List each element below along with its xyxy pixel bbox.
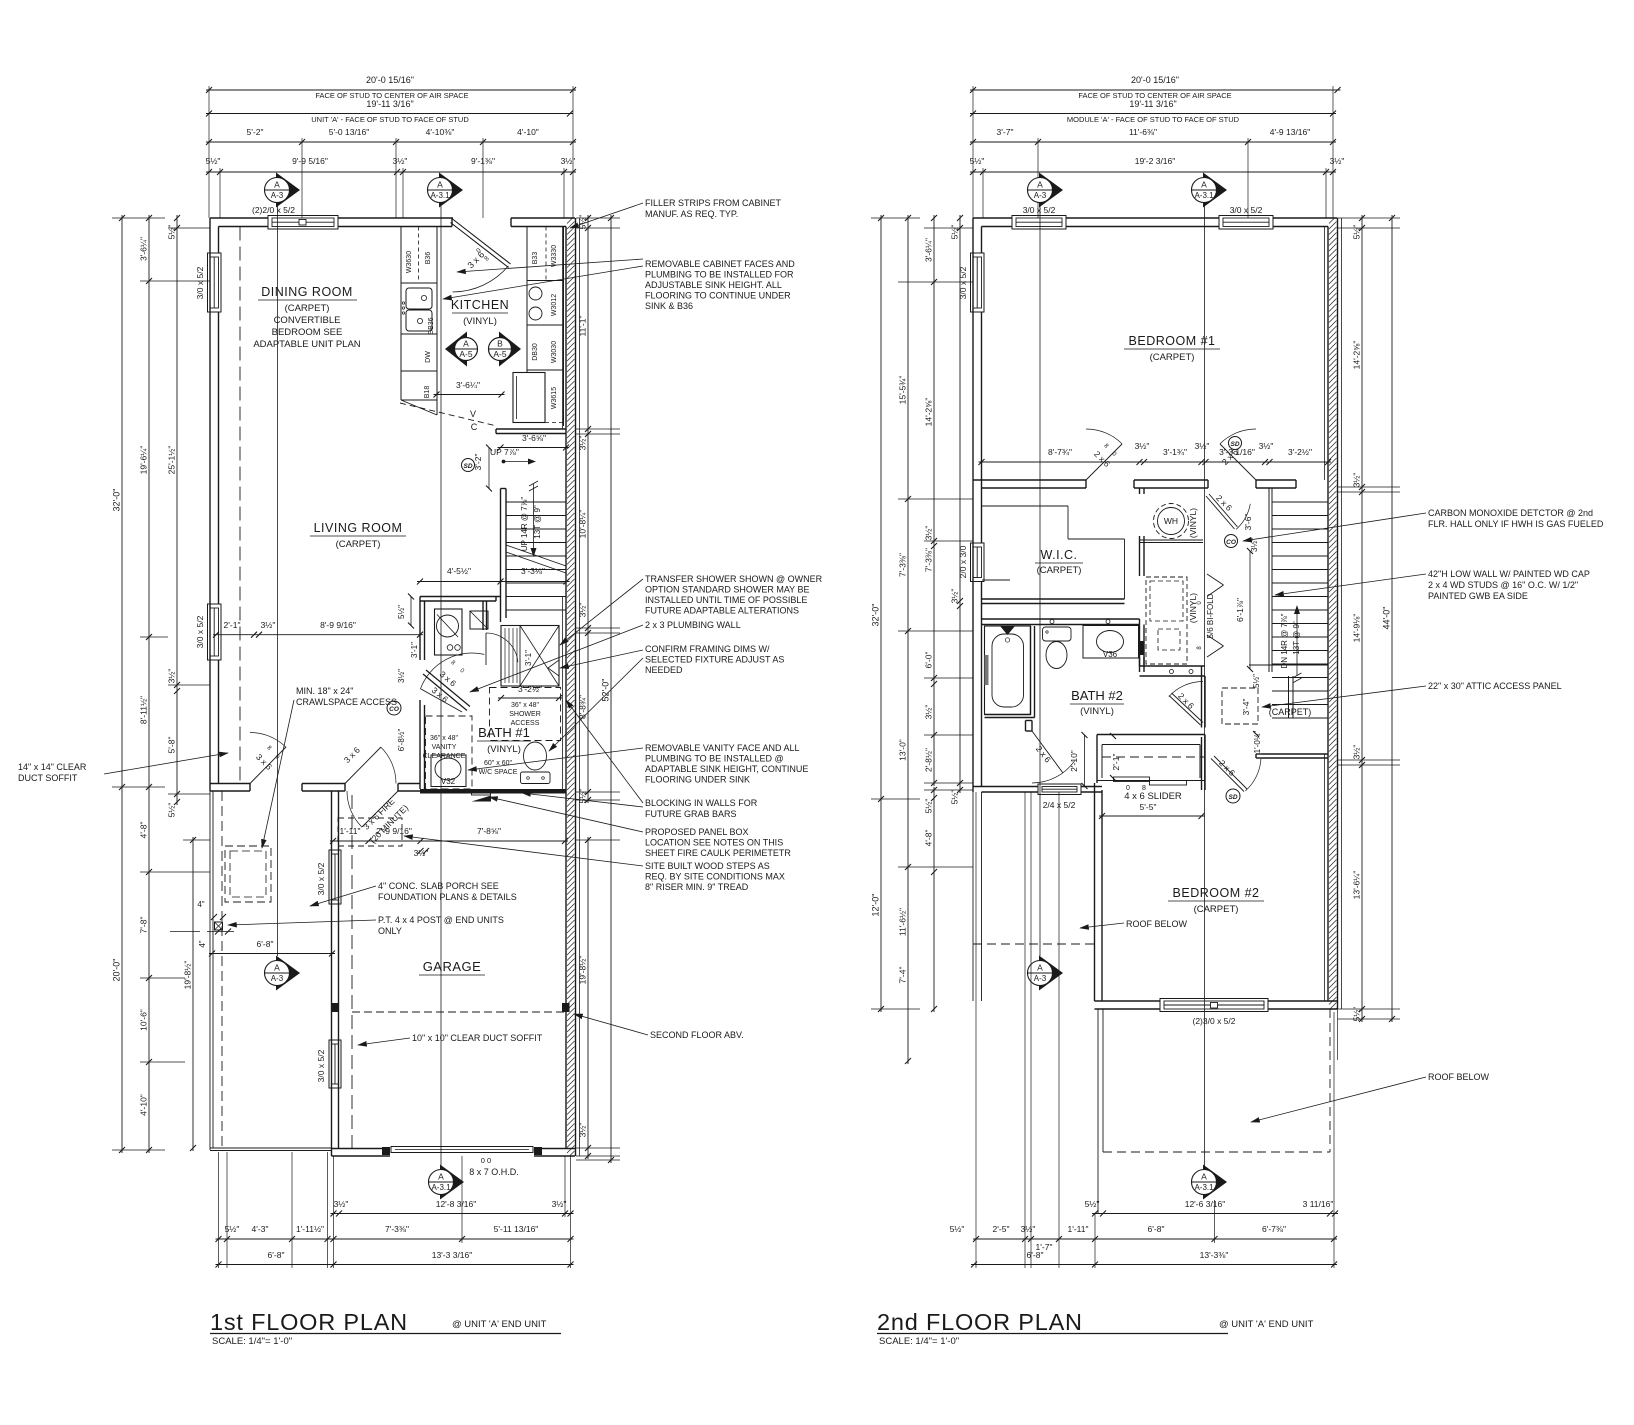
svg-text:4'-10": 4'-10" [139, 1094, 149, 1116]
svg-text:8'-9 9/16": 8'-9 9/16" [320, 620, 356, 630]
svg-text:W3330: W3330 [551, 245, 558, 267]
svg-text:22" x 30" ATTIC ACCESS PANEL: 22" x 30" ATTIC ACCESS PANEL [1428, 681, 1562, 691]
svg-text:A-3.1: A-3.1 [1194, 191, 1214, 200]
svg-text:2nd FLOOR PLAN: 2nd FLOOR PLAN [877, 1309, 1083, 1335]
svg-text:3½": 3½" [261, 620, 276, 630]
svg-text:5½": 5½" [167, 225, 177, 240]
svg-text:REMOVABLE CABINET FACES AND: REMOVABLE CABINET FACES AND [645, 259, 795, 269]
svg-text:2 x 3 PLUMBING WALL: 2 x 3 PLUMBING WALL [645, 620, 741, 630]
svg-text:1st FLOOR PLAN: 1st FLOOR PLAN [210, 1309, 408, 1335]
svg-text:3½": 3½" [1135, 441, 1150, 451]
svg-text:W/C SPACE: W/C SPACE [479, 769, 518, 776]
svg-text:20'-0": 20'-0" [112, 959, 122, 982]
svg-text:B18: B18 [424, 386, 431, 399]
svg-text:(VINYL): (VINYL) [1080, 706, 1114, 717]
svg-text:3'-3⅛": 3'-3⅛" [521, 566, 545, 576]
svg-text:4 x 6 SLIDER: 4 x 6 SLIDER [1124, 791, 1182, 802]
svg-text:5½": 5½" [924, 799, 934, 814]
svg-text:A: A [1201, 1172, 1207, 1182]
svg-text:6'-1⅞": 6'-1⅞" [1235, 598, 1245, 622]
svg-text:5½": 5½" [970, 156, 985, 166]
svg-text:MIN. 18" x 24": MIN. 18" x 24" [296, 686, 353, 696]
svg-text:GARAGE: GARAGE [423, 959, 482, 974]
svg-text:PAINTED GWB EA SIDE: PAINTED GWB EA SIDE [1428, 591, 1528, 601]
svg-text:A: A [437, 180, 443, 190]
svg-text:FUTURE GRAB BARS: FUTURE GRAB BARS [645, 809, 737, 819]
svg-text:13T @ 9": 13T @ 9" [1292, 621, 1301, 655]
svg-text:(CARPET): (CARPET) [1269, 707, 1312, 717]
svg-text:1'-11": 1'-11" [339, 826, 360, 836]
svg-text:3'-2½": 3'-2½" [518, 684, 542, 694]
svg-text:BATH #2: BATH #2 [1071, 688, 1123, 703]
svg-text:A: A [1201, 180, 1207, 190]
svg-text:0 0: 0 0 [481, 1156, 491, 1165]
svg-text:3½": 3½" [167, 669, 177, 684]
svg-text:ADAPTABLE UNIT PLAN: ADAPTABLE UNIT PLAN [253, 339, 360, 350]
svg-text:5'-2": 5'-2" [247, 127, 264, 137]
svg-text:(2)3/0 x 5/2: (2)3/0 x 5/2 [1193, 1016, 1236, 1026]
svg-text:SINK & B36: SINK & B36 [645, 301, 693, 311]
svg-text:SD: SD [1228, 794, 1237, 801]
svg-text:25'-1½": 25'-1½" [167, 446, 177, 475]
svg-text:VANITY: VANITY [432, 744, 457, 751]
svg-text:SELECTED FIXTURE ADJUST AS: SELECTED FIXTURE ADJUST AS [645, 655, 784, 665]
svg-text:19'-11 3/16": 19'-11 3/16" [1129, 99, 1176, 109]
svg-text:CO: CO [1226, 539, 1236, 546]
svg-text:14'-2⅝": 14'-2⅝" [924, 398, 934, 427]
svg-text:3'-1": 3'-1" [524, 650, 533, 666]
svg-text:CRAWLSPACE ACCESS: CRAWLSPACE ACCESS [296, 697, 397, 707]
svg-text:11'-6⅜": 11'-6⅜" [1129, 127, 1157, 137]
svg-text:BATH #1: BATH #1 [478, 725, 530, 740]
svg-text:4'-8": 4'-8" [139, 822, 149, 839]
svg-text:FILLER STRIPS FROM CABINET: FILLER STRIPS FROM CABINET [645, 198, 782, 208]
svg-text:PROPOSED PANEL BOX: PROPOSED PANEL BOX [645, 827, 749, 837]
svg-text:10" x 10" CLEAR DUCT SOFFIT: 10" x 10" CLEAR DUCT SOFFIT [412, 1033, 543, 1043]
svg-text:INSTALLED UNTIL TIME OF POSSIB: INSTALLED UNTIL TIME OF POSSIBLE [645, 595, 807, 605]
svg-text:14'-9⅛": 14'-9⅛" [1352, 614, 1362, 643]
svg-text:A-3: A-3 [271, 974, 284, 983]
svg-text:@ UNIT 'A' END UNIT: @ UNIT 'A' END UNIT [1219, 1319, 1314, 1330]
svg-text:3½": 3½" [1195, 441, 1210, 451]
svg-text:3/0 x 5/2: 3/0 x 5/2 [958, 266, 968, 299]
svg-text:4": 4" [197, 900, 204, 909]
svg-text:3/0 x 5/2: 3/0 x 5/2 [195, 266, 205, 299]
svg-text:5½": 5½" [950, 790, 960, 805]
svg-text:12'-8 3/16": 12'-8 3/16" [436, 1199, 477, 1209]
svg-text:14'-2⅝": 14'-2⅝" [1352, 341, 1362, 370]
svg-text:FLOORING TO CONTINUE UNDER: FLOORING TO CONTINUE UNDER [645, 291, 791, 301]
svg-text:SB36: SB36 [428, 317, 435, 334]
svg-text:9'-9 5/16": 9'-9 5/16" [292, 156, 328, 166]
svg-text:ROOF BELOW: ROOF BELOW [1126, 919, 1188, 929]
svg-text:DW: DW [425, 351, 432, 363]
svg-text:DINING ROOM: DINING ROOM [261, 285, 353, 299]
svg-text:6'-7⅜": 6'-7⅜" [1262, 1224, 1286, 1234]
svg-text:(CARPET): (CARPET) [1150, 352, 1195, 363]
svg-text:42"H LOW WALL W/ PAINTED WD CA: 42"H LOW WALL W/ PAINTED WD CAP [1428, 569, 1590, 579]
svg-text:2'-5": 2'-5" [993, 1224, 1010, 1234]
svg-text:SCALE: 1/4"= 1'-0": SCALE: 1/4"= 1'-0" [879, 1336, 959, 1347]
svg-text:PLUMBING TO BE INSTALLED FOR: PLUMBING TO BE INSTALLED FOR [645, 270, 794, 280]
svg-text:5'-11 13/16": 5'-11 13/16" [494, 1224, 539, 1234]
svg-text:3½": 3½" [1352, 745, 1362, 760]
svg-text:CARBON MONOXIDE DETCTOR @ 2nd: CARBON MONOXIDE DETCTOR @ 2nd [1428, 508, 1593, 518]
svg-text:KITCHEN: KITCHEN [451, 298, 509, 312]
svg-text:V32: V32 [441, 777, 456, 786]
svg-text:3/0 x 5/2: 3/0 x 5/2 [1230, 205, 1263, 215]
svg-text:P.T. 4 x 4 POST @ END UNITS: P.T. 4 x 4 POST @ END UNITS [378, 915, 504, 925]
svg-text:3'-1": 3'-1" [410, 642, 419, 658]
svg-text:FLOORING UNDER SINK: FLOORING UNDER SINK [645, 775, 750, 785]
svg-text:A-3.1: A-3.1 [430, 191, 450, 200]
svg-text:5½": 5½" [397, 605, 406, 619]
svg-text:C: C [471, 422, 478, 432]
svg-text:7'-3⅜": 7'-3⅜" [385, 1224, 409, 1234]
svg-text:(VINYL): (VINYL) [463, 316, 497, 327]
svg-text:4": 4" [198, 940, 207, 947]
svg-text:CONVERTIBLE: CONVERTIBLE [274, 315, 341, 326]
svg-text:2/0 x 3/0: 2/0 x 3/0 [958, 545, 968, 578]
svg-text:SITE BUILT WOOD STEPS AS: SITE BUILT WOOD STEPS AS [645, 861, 770, 871]
svg-text:FUTURE ADAPTABLE ALTERATIONS: FUTURE ADAPTABLE ALTERATIONS [645, 606, 799, 616]
svg-text:6'-0": 6'-0" [924, 652, 934, 669]
svg-text:4'-8": 4'-8" [924, 830, 934, 847]
svg-text:12'-6 3/16": 12'-6 3/16" [1185, 1199, 1226, 1209]
svg-text:ROOF BELOW: ROOF BELOW [1428, 1072, 1490, 1082]
svg-text:7'-3⅜": 7'-3⅜" [898, 553, 908, 577]
svg-text:3½": 3½" [578, 1123, 588, 1138]
svg-text:A-3.1: A-3.1 [431, 1183, 451, 1192]
svg-text:B36: B36 [425, 252, 432, 265]
svg-text:13T @ 9": 13T @ 9" [533, 505, 542, 539]
svg-text:BEDROOM #2: BEDROOM #2 [1173, 886, 1260, 900]
svg-text:(CARPET): (CARPET) [1194, 904, 1239, 915]
svg-text:5½": 5½" [167, 803, 177, 818]
svg-text:SD: SD [463, 463, 472, 470]
svg-text:(VINYL): (VINYL) [1188, 593, 1198, 623]
svg-text:BEDROOM #1: BEDROOM #1 [1129, 334, 1216, 348]
svg-text:3'-4": 3'-4" [1241, 699, 1251, 716]
svg-text:20'-0 15/16": 20'-0 15/16" [366, 75, 414, 85]
svg-text:SD: SD [1230, 441, 1239, 448]
svg-text:1'-11½": 1'-11½" [296, 1224, 324, 1234]
svg-text:DN 14R @ 7⅞": DN 14R @ 7⅞" [1280, 613, 1289, 668]
svg-text:5½": 5½" [950, 225, 960, 240]
svg-text:A-5: A-5 [459, 349, 473, 359]
svg-text:W3615: W3615 [551, 387, 558, 409]
svg-text:W3012: W3012 [551, 294, 558, 316]
svg-text:CONFIRM FRAMING DIMS W/: CONFIRM FRAMING DIMS W/ [645, 644, 770, 654]
svg-text:13'-6¼": 13'-6¼" [1352, 871, 1362, 900]
svg-text:32'-0": 32'-0" [871, 604, 881, 627]
svg-text:44'-0": 44'-0" [1382, 607, 1392, 630]
svg-text:2 x 4 WD STUDS @ 16" O.C. W/ 1: 2 x 4 WD STUDS @ 16" O.C. W/ 1/2" [1428, 580, 1578, 590]
svg-text:36" x 48": 36" x 48" [430, 735, 458, 742]
svg-text:A: A [463, 339, 469, 349]
svg-text:20'-0 15/16": 20'-0 15/16" [1131, 75, 1179, 85]
svg-text:13'-3 3/16": 13'-3 3/16" [432, 1250, 473, 1260]
svg-text:3'-7": 3'-7" [997, 127, 1014, 137]
svg-text:(VINYL): (VINYL) [487, 744, 521, 755]
svg-text:A: A [274, 180, 280, 190]
svg-text:7'-8": 7'-8" [139, 917, 149, 934]
svg-text:13'-0": 13'-0" [898, 739, 908, 761]
svg-text:5½": 5½" [578, 789, 588, 804]
svg-text:A-3: A-3 [1034, 974, 1047, 983]
svg-text:4'-10⅜": 4'-10⅜" [426, 127, 455, 137]
svg-text:3½": 3½" [414, 848, 429, 858]
svg-text:W3630: W3630 [406, 251, 413, 273]
svg-text:LOCATION SEE NOTES ON THIS: LOCATION SEE NOTES ON THIS [645, 838, 783, 848]
svg-text:(CARPET): (CARPET) [336, 539, 381, 550]
svg-text:3'-6¼": 3'-6¼" [456, 380, 480, 390]
svg-text:FLR. HALL ONLY IF HWH IS GAS F: FLR. HALL ONLY IF HWH IS GAS FUELED [1428, 519, 1604, 529]
svg-text:TRANSFER SHOWER SHOWN @ OWNER: TRANSFER SHOWER SHOWN @ OWNER [645, 574, 823, 584]
svg-text:8'-8¾": 8'-8¾" [578, 695, 588, 719]
svg-text:7'-8⅝": 7'-8⅝" [477, 826, 501, 836]
svg-text:5/6 BI-FOLD: 5/6 BI-FOLD [1206, 593, 1215, 638]
svg-text:5½": 5½" [950, 1224, 965, 1234]
svg-text:3'-2½": 3'-2½" [1288, 447, 1312, 457]
svg-text:3½": 3½" [552, 1199, 567, 1209]
svg-text:3½": 3½" [1352, 473, 1362, 488]
svg-text:12'-0": 12'-0" [871, 894, 881, 917]
svg-text:14" x 14" CLEAR: 14" x 14" CLEAR [18, 762, 87, 772]
svg-text:A: A [274, 963, 280, 973]
svg-text:19'-8½": 19'-8½" [578, 956, 588, 985]
svg-text:19'-2 3/16": 19'-2 3/16" [1135, 156, 1176, 166]
svg-text:LIVING ROOM: LIVING ROOM [314, 521, 403, 535]
svg-text:(CARPET): (CARPET) [285, 303, 330, 314]
svg-text:FOUNDATION PLANS & DETAILS: FOUNDATION PLANS & DETAILS [378, 892, 517, 902]
svg-text:A-3.1: A-3.1 [1194, 1183, 1214, 1192]
svg-text:5½": 5½" [206, 156, 221, 166]
svg-text:5'-8": 5'-8" [167, 737, 177, 754]
svg-text:ONLY: ONLY [378, 926, 402, 936]
svg-text:ADAPTABLE SINK HEIGHT, CONTINU: ADAPTABLE SINK HEIGHT, CONTINUE [645, 764, 808, 774]
svg-text:(CARPET): (CARPET) [1037, 565, 1082, 576]
svg-text:5'-0 13/16": 5'-0 13/16" [329, 127, 370, 137]
svg-text:V: V [470, 409, 476, 419]
svg-text:REMOVABLE VANITY FACE AND ALL: REMOVABLE VANITY FACE AND ALL [645, 743, 800, 753]
svg-text:3½": 3½" [393, 156, 408, 166]
svg-text:NEEDED: NEEDED [645, 665, 683, 675]
svg-text:15'-5¾": 15'-5¾" [898, 376, 908, 405]
svg-text:11'-6½": 11'-6½" [898, 908, 908, 936]
svg-text:A-3: A-3 [1034, 191, 1047, 200]
svg-text:10'-6": 10'-6" [139, 1009, 149, 1031]
svg-text:BEDROOM SEE: BEDROOM SEE [272, 327, 343, 338]
svg-text:1'-11": 1'-11" [1067, 1224, 1088, 1234]
svg-text:3/0 x 5/2: 3/0 x 5/2 [316, 862, 326, 895]
svg-text:3'-2": 3'-2" [473, 454, 483, 471]
svg-text:3½": 3½" [578, 436, 588, 451]
svg-text:5½": 5½" [578, 215, 588, 230]
svg-text:A-3: A-3 [271, 191, 284, 200]
svg-text:4'-10": 4'-10" [517, 127, 539, 137]
svg-text:8'-11½": 8'-11½" [139, 696, 149, 724]
svg-text:SCALE: 1/4"= 1'-0": SCALE: 1/4"= 1'-0" [212, 1336, 292, 1347]
svg-text:32'-0": 32'-0" [112, 489, 122, 512]
svg-text:3½": 3½" [334, 1199, 349, 1209]
svg-text:SECOND FLOOR ABV.: SECOND FLOOR ABV. [650, 1030, 744, 1040]
svg-text:DUCT SOFFIT: DUCT SOFFIT [18, 773, 78, 783]
svg-text:3½": 3½" [1259, 441, 1274, 451]
svg-text:3'-6⅝": 3'-6⅝" [522, 433, 546, 443]
svg-text:A: A [1037, 963, 1043, 973]
svg-text:MODULE 'A' - FACE OF STUD TO F: MODULE 'A' - FACE OF STUD TO FACE OF STU… [1067, 115, 1240, 124]
svg-text:6'-8": 6'-8" [257, 939, 274, 949]
svg-text:6'-8": 6'-8" [1148, 1224, 1165, 1234]
svg-text:19'-6¼": 19'-6¼" [139, 446, 149, 475]
svg-text:3 11/16": 3 11/16" [1303, 1199, 1334, 1209]
svg-text:5½": 5½" [1352, 225, 1362, 240]
svg-text:3'-6¼": 3'-6¼" [139, 237, 149, 261]
svg-text:10'-8¼": 10'-8¼" [578, 510, 588, 539]
svg-text:5½": 5½" [1252, 674, 1261, 688]
svg-text:(2)2/0 x 5/2: (2)2/0 x 5/2 [252, 205, 295, 215]
svg-text:@ UNIT 'A' END UNIT: @ UNIT 'A' END UNIT [452, 1319, 547, 1330]
svg-text:3½": 3½" [950, 589, 960, 604]
svg-text:3½": 3½" [924, 526, 934, 541]
svg-text:DB30: DB30 [532, 343, 539, 361]
svg-text:A: A [1037, 180, 1043, 190]
svg-text:A: A [438, 1172, 444, 1182]
svg-text:BLOCKING IN WALLS FOR: BLOCKING IN WALLS FOR [645, 798, 758, 808]
svg-text:7'-3⅜": 7'-3⅜" [924, 548, 934, 572]
svg-text:CO: CO [389, 706, 399, 713]
svg-text:2'-1": 2'-1" [224, 620, 241, 630]
svg-text:PLUMBING TO BE INSTALLED @: PLUMBING TO BE INSTALLED @ [645, 754, 784, 764]
svg-text:3½": 3½" [1021, 1224, 1036, 1234]
svg-text:6'-8½": 6'-8½" [397, 729, 406, 752]
svg-text:4'-5½": 4'-5½" [447, 566, 471, 576]
svg-text:WH: WH [1164, 516, 1178, 526]
svg-text:4'-9 13/16": 4'-9 13/16" [1270, 127, 1311, 137]
svg-text:11'-1": 11'-1" [578, 315, 588, 336]
svg-text:ADJUSTABLE SINK HEIGHT. ALL: ADJUSTABLE SINK HEIGHT. ALL [645, 280, 782, 290]
svg-text:1'-0¼": 1'-0¼" [1253, 731, 1262, 754]
svg-text:6'-8": 6'-8" [268, 1250, 285, 1260]
svg-text:SHOWER: SHOWER [509, 711, 541, 718]
svg-text:(VINYL): (VINYL) [1188, 508, 1198, 538]
svg-text:W3030: W3030 [551, 341, 558, 363]
svg-text:3½": 3½" [1330, 156, 1345, 166]
svg-text:3/0 x 5/2: 3/0 x 5/2 [195, 615, 205, 648]
svg-text:UP 14R @ 7⅞": UP 14R @ 7⅞" [520, 497, 529, 552]
svg-text:MANUF. AS REQ. TYP.: MANUF. AS REQ. TYP. [645, 209, 738, 219]
svg-text:3'-3 1/16": 3'-3 1/16" [1219, 447, 1255, 457]
svg-text:B: B [497, 339, 503, 349]
svg-text:5'-5": 5'-5" [1140, 802, 1157, 812]
svg-text:4'-3": 4'-3" [252, 1224, 269, 1234]
svg-text:4" CONC. SLAB PORCH SEE: 4" CONC. SLAB PORCH SEE [378, 881, 499, 891]
svg-text:W.I.C.: W.I.C. [1040, 548, 1077, 562]
svg-text:2'-9 9/16": 2'-9 9/16" [376, 826, 412, 836]
svg-text:3½": 3½" [397, 669, 406, 683]
svg-text:2'-8½": 2'-8½" [924, 748, 934, 772]
svg-text:8" RISER MIN. 9" TREAD: 8" RISER MIN. 9" TREAD [645, 882, 749, 892]
svg-text:19'-11 3/16": 19'-11 3/16" [366, 99, 413, 109]
svg-text:8 x 7 O.H.D.: 8 x 7 O.H.D. [469, 1167, 519, 1177]
svg-text:19'-8½": 19'-8½" [183, 961, 193, 990]
svg-text:5½": 5½" [1085, 1199, 1100, 1209]
svg-text:8'-7¾": 8'-7¾" [1048, 447, 1072, 457]
svg-text:2'-10": 2'-10" [1069, 750, 1079, 772]
svg-text:13'-3⅜": 13'-3⅜" [1200, 1250, 1229, 1260]
svg-text:SHEET FIRE CAULK PERIMETETR: SHEET FIRE CAULK PERIMETETR [645, 848, 791, 858]
svg-text:6'-8": 6'-8" [1027, 1250, 1044, 1260]
svg-text:2'-1": 2'-1" [1111, 754, 1121, 771]
svg-text:UP 7⅞": UP 7⅞" [490, 447, 519, 457]
svg-text:3½": 3½" [924, 705, 934, 720]
svg-text:3½": 3½" [578, 603, 588, 618]
svg-text:7'-4": 7'-4" [898, 967, 908, 984]
svg-text:3'-6": 3'-6" [1243, 514, 1253, 531]
svg-text:OPTION STANDARD SHOWER MAY BE: OPTION STANDARD SHOWER MAY BE [645, 585, 810, 595]
svg-text:A-5: A-5 [493, 349, 507, 359]
svg-text:REQ. BY SITE CONDITIONS MAX: REQ. BY SITE CONDITIONS MAX [645, 872, 785, 882]
svg-text:UNIT 'A' - FACE OF STUD TO FAC: UNIT 'A' - FACE OF STUD TO FACE OF STUD [311, 115, 469, 124]
svg-text:CLEARANCE: CLEARANCE [423, 753, 466, 760]
svg-text:3'-6¼": 3'-6¼" [924, 238, 934, 262]
svg-text:3/0 x 5/2: 3/0 x 5/2 [316, 1049, 326, 1082]
svg-text:3'-1¾": 3'-1¾" [1163, 447, 1187, 457]
svg-text:36" x 48": 36" x 48" [511, 702, 539, 709]
svg-text:B33: B33 [532, 252, 539, 265]
svg-text:V36: V36 [1103, 650, 1118, 659]
